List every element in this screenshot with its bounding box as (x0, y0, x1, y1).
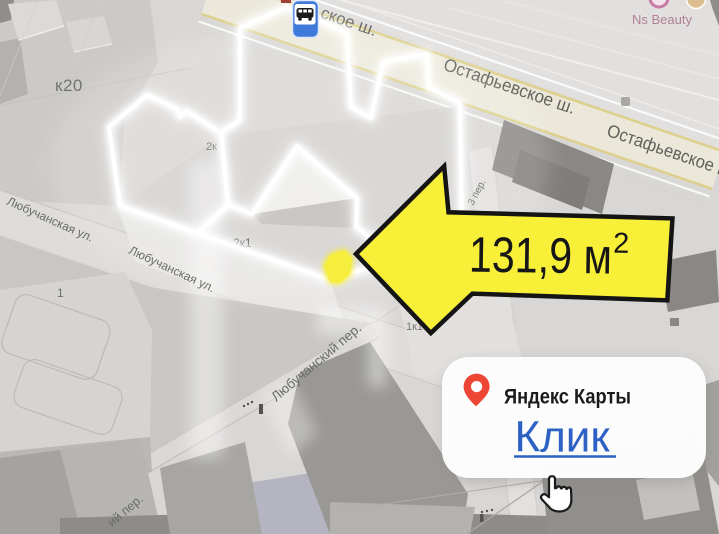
svg-text:к20: к20 (55, 76, 83, 95)
svg-text:131,9 м: 131,9 м (469, 227, 613, 285)
svg-text:2к: 2к (206, 141, 217, 153)
svg-text:2: 2 (613, 228, 630, 260)
svg-text:1: 1 (57, 286, 64, 300)
svg-text:Яндекс Карты: Яндекс Карты (504, 386, 631, 409)
svg-text:Клик: Клик (515, 413, 611, 462)
svg-text:Ns Beauty: Ns Beauty (632, 12, 692, 27)
